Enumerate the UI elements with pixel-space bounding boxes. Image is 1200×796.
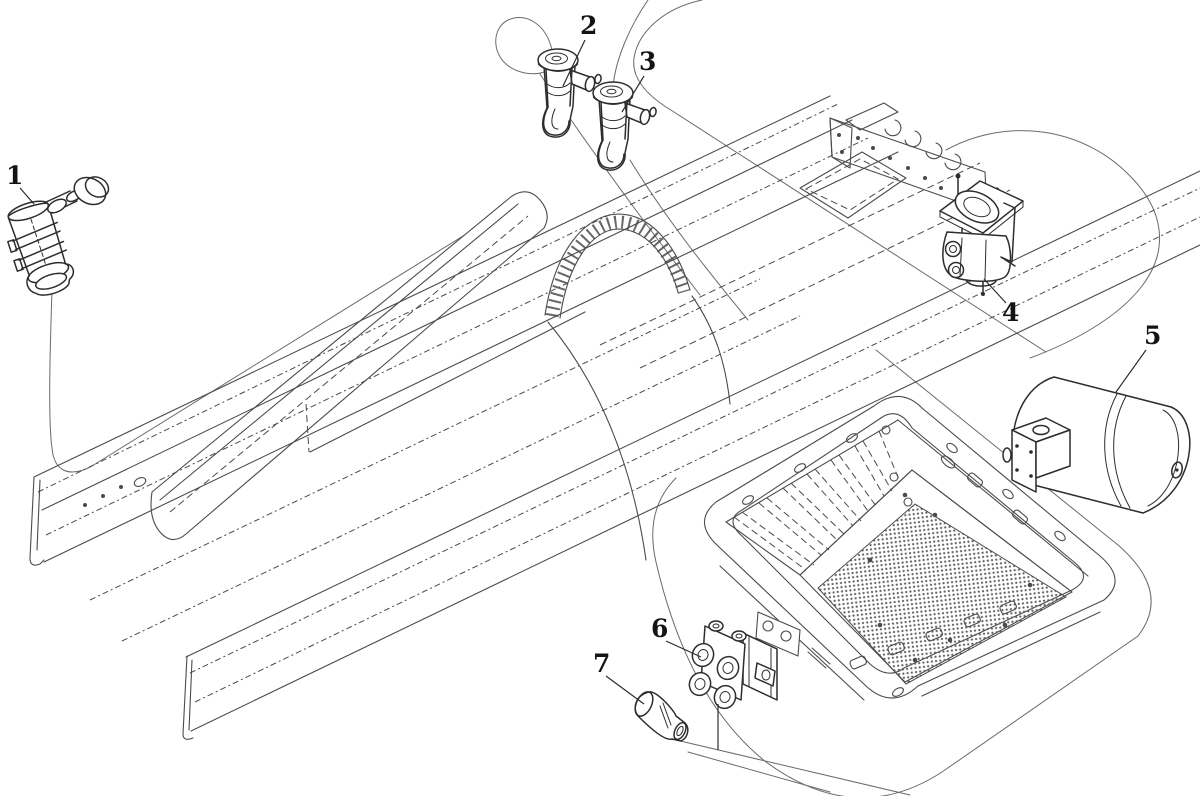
leader-line-7 [606, 676, 644, 704]
diagram-canvas: 1 2 3 4 5 6 7 [0, 0, 1200, 796]
phantom-line-bottom-2 [688, 752, 830, 792]
relay-valve [940, 174, 1023, 297]
part-number-label-5: 5 [1144, 321, 1161, 350]
c-cutout [885, 120, 901, 136]
part-number-label-7: 7 [593, 649, 610, 678]
tank-fitting [1003, 448, 1011, 462]
valve-port-2 [949, 263, 964, 278]
part-number-label-4: 4 [1002, 298, 1019, 327]
part-number-label-3: 3 [639, 47, 656, 76]
c-cutout [905, 131, 921, 147]
part-number-label-6: 6 [651, 614, 668, 643]
parts-diagram: 1 2 3 4 5 6 7 [0, 0, 1200, 796]
phantom-line-bottom-1 [676, 740, 910, 795]
drain-valve-rear [593, 82, 657, 170]
part-number-label-1: 1 [6, 161, 23, 190]
leader-line-5 [1116, 350, 1146, 392]
valve-port-1 [946, 242, 961, 257]
plug-fitting [632, 689, 689, 741]
leader-line-1 [20, 188, 34, 204]
part-number-label-2: 2 [580, 11, 597, 40]
c-cutout [945, 154, 961, 170]
control-valve [0, 172, 112, 302]
wheel-arch [545, 214, 730, 560]
c-cutout [926, 143, 942, 159]
air-tank [1003, 377, 1190, 513]
